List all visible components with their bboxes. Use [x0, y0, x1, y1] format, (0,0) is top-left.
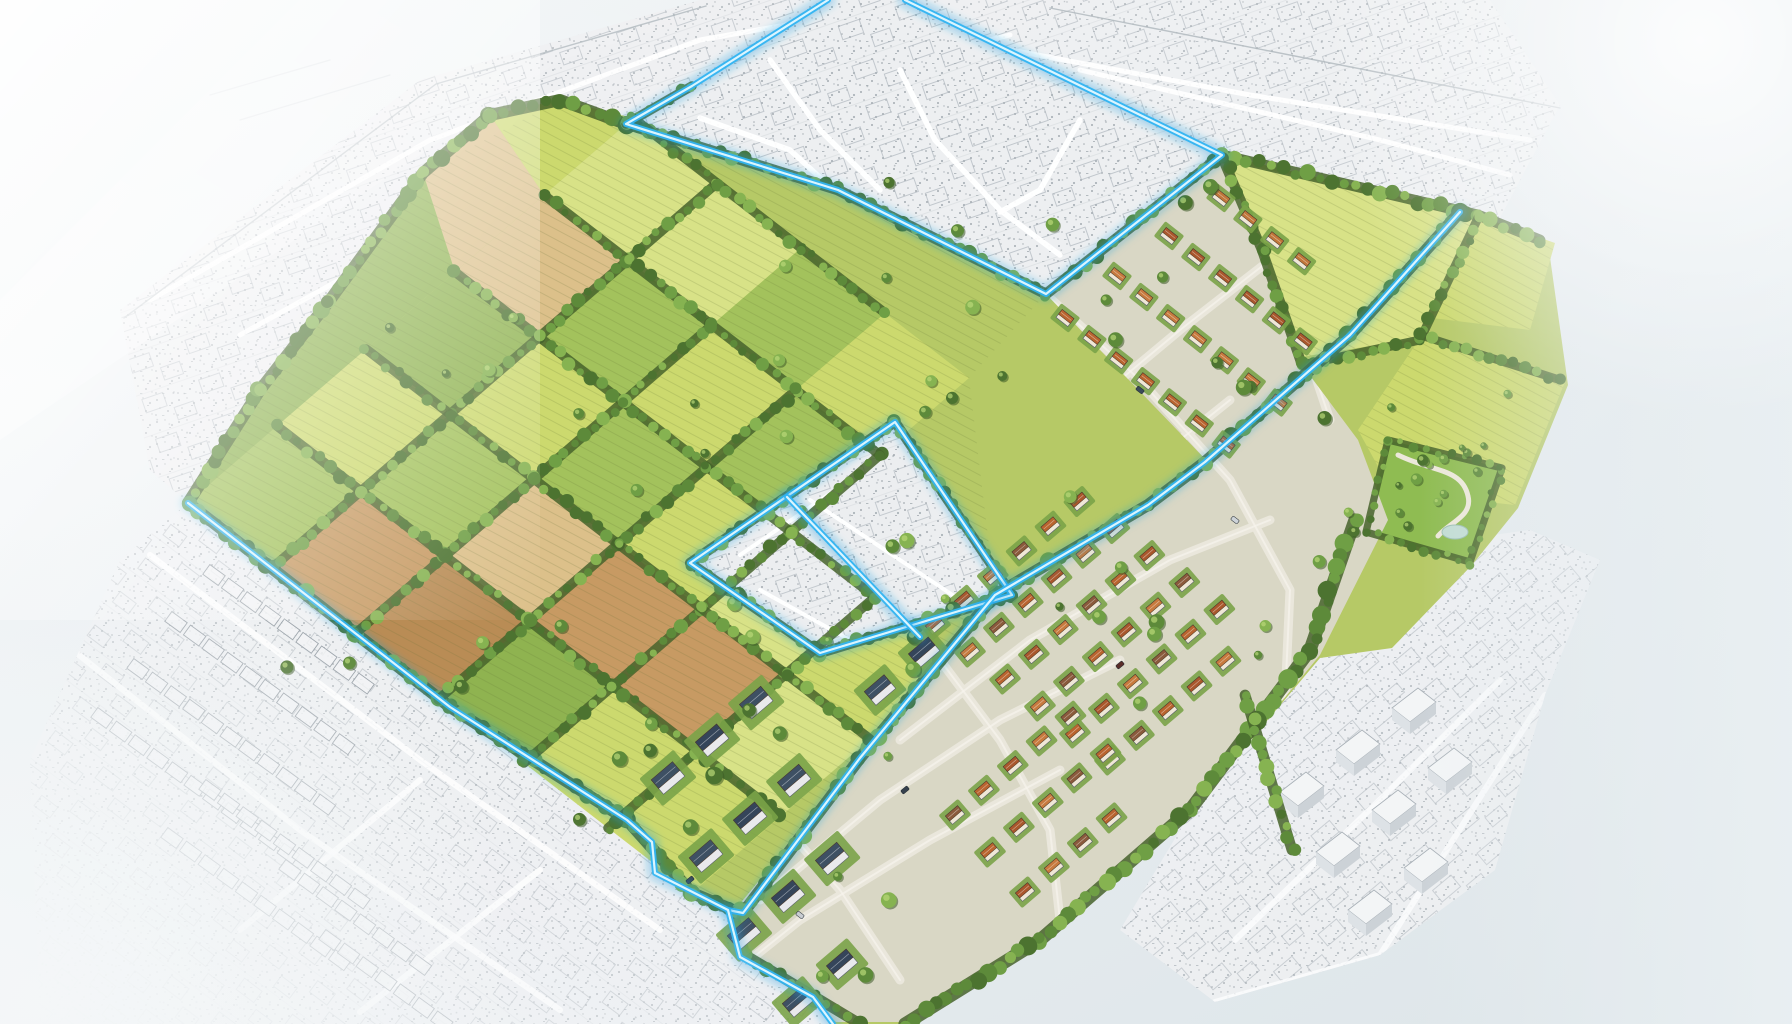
hedgerow-tree — [539, 485, 548, 494]
tree — [573, 408, 584, 419]
hedgerow-tree — [1283, 822, 1291, 830]
hedgerow-tree — [792, 678, 799, 685]
hedgerow-tree — [1155, 825, 1170, 840]
tree — [780, 430, 793, 443]
hedgerow-tree — [1089, 886, 1099, 896]
hedgerow-tree — [611, 408, 620, 417]
hedgerow-tree — [645, 269, 658, 282]
tree-highlight — [902, 535, 908, 541]
tree — [1236, 380, 1252, 396]
tree-highlight — [1135, 699, 1140, 704]
tree-highlight — [1261, 622, 1266, 627]
hedgerow-tree — [605, 389, 619, 403]
tree-highlight — [1255, 652, 1258, 655]
hedgerow-tree — [1370, 502, 1378, 510]
tree — [1260, 620, 1272, 632]
hedgerow-tree — [703, 186, 713, 196]
hedgerow-tree — [825, 267, 837, 279]
hedgerow-tree — [828, 561, 835, 568]
hedgerow-tree — [738, 347, 746, 355]
hedgerow-tree — [775, 230, 783, 238]
tree-highlight — [860, 969, 866, 975]
hedgerow-tree — [711, 455, 720, 464]
hedgerow-tree — [1099, 874, 1116, 891]
hedgerow-tree — [731, 434, 741, 444]
hedgerow-tree — [826, 409, 833, 416]
hedgerow-tree — [795, 537, 804, 546]
hedgerow-tree — [852, 723, 863, 734]
hedgerow-tree — [1367, 515, 1375, 523]
tree-highlight — [1351, 528, 1355, 532]
hedgerow-tree — [1378, 342, 1390, 354]
hedgerow-tree — [668, 148, 679, 159]
tree — [1055, 602, 1063, 610]
hedgerow-tree — [570, 507, 582, 519]
hedgerow-tree — [763, 539, 777, 553]
hedgerow-tree — [840, 619, 849, 628]
hedgerow-tree — [832, 1004, 840, 1012]
tree-highlight — [825, 638, 828, 641]
tree — [1101, 294, 1112, 305]
tree-highlight — [1238, 382, 1244, 388]
hedgerow-tree — [561, 209, 568, 216]
hedgerow-tree — [633, 524, 644, 535]
hedgerow-tree — [773, 369, 782, 378]
hedgerow-tree — [1272, 785, 1282, 795]
tree — [946, 392, 958, 404]
hedgerow-tree — [811, 402, 819, 410]
hedgerow-tree — [1293, 652, 1307, 666]
tree-highlight — [883, 274, 887, 278]
hedgerow-tree — [1267, 280, 1277, 290]
hedgerow-tree — [675, 213, 684, 222]
hedgerow-tree — [1325, 175, 1340, 190]
hedgerow-tree — [596, 377, 608, 389]
hedgerow-tree — [659, 429, 671, 441]
hedgerow-tree — [577, 368, 584, 375]
hedgerow-tree — [815, 499, 827, 511]
tree — [1064, 490, 1077, 503]
tree — [1133, 696, 1146, 709]
hedgerow-tree — [571, 440, 579, 448]
tree — [858, 967, 874, 983]
tree-highlight — [775, 356, 780, 361]
hedgerow-tree — [846, 282, 858, 294]
tree — [925, 375, 937, 387]
hedgerow-tree — [626, 406, 639, 419]
hedgerow-tree — [781, 394, 795, 408]
tree — [1147, 627, 1162, 642]
hedgerow-tree — [1375, 529, 1382, 536]
hedgerow-tree — [591, 424, 599, 432]
tree-highlight — [1315, 557, 1320, 562]
hedgerow-tree — [760, 412, 770, 422]
tree-highlight — [1205, 181, 1211, 187]
hedgerow-tree — [592, 520, 603, 531]
hedgerow-tree — [652, 228, 660, 236]
hedgerow-tree — [546, 323, 556, 333]
hedgerow-tree — [684, 300, 698, 314]
hedgerow-tree — [657, 279, 666, 288]
hedgerow-tree — [815, 696, 824, 705]
tree — [1211, 357, 1223, 369]
hedgerow-tree — [1268, 794, 1282, 808]
hedgerow-tree — [1277, 810, 1286, 819]
hedgerow-tree — [1260, 256, 1270, 266]
tree — [1395, 482, 1402, 489]
tree-highlight — [948, 394, 953, 399]
tree — [1108, 332, 1123, 347]
tree-highlight — [888, 541, 894, 547]
hedgerow-tree — [693, 196, 705, 208]
hedgerow-tree — [854, 469, 865, 480]
hedgerow-tree — [562, 357, 576, 371]
hedgerow-tree — [834, 483, 844, 493]
tree — [690, 399, 699, 408]
hedgerow-tree — [783, 235, 797, 249]
hedgerow-tree — [550, 196, 564, 210]
hedgerow-tree — [1253, 154, 1266, 167]
hedgerow-tree — [721, 332, 728, 339]
hedgerow-tree — [781, 670, 793, 682]
tree — [997, 371, 1007, 381]
hedgerow-tree — [594, 278, 606, 290]
hedgerow-tree — [1397, 539, 1405, 547]
hedgerow-tree — [1280, 831, 1293, 844]
hedgerow-tree — [671, 439, 680, 448]
hedgerow-tree — [1368, 346, 1378, 356]
hedgerow-tree — [833, 419, 841, 427]
tree — [899, 533, 914, 548]
hedgerow-tree — [1289, 844, 1301, 856]
hedgerow-tree — [686, 339, 696, 349]
hedgerow-tree — [837, 276, 847, 286]
hedgerow-tree — [1196, 781, 1212, 797]
hedgerow-tree — [1407, 543, 1416, 552]
tree — [816, 970, 828, 982]
hedgerow-tree — [684, 206, 693, 215]
tree — [881, 273, 891, 283]
hedgerow-tree — [548, 488, 560, 500]
tree-highlight — [1048, 220, 1053, 225]
tree — [883, 752, 892, 761]
tree-highlight — [691, 400, 694, 403]
tree-highlight — [883, 895, 889, 901]
tree-highlight — [1110, 335, 1116, 341]
hedgerow-tree — [581, 105, 591, 115]
hedgerow-tree — [864, 459, 872, 467]
hedgerow-tree — [584, 288, 592, 296]
hedgerow-tree — [558, 448, 568, 458]
tree-highlight — [1102, 296, 1106, 300]
hedgerow-tree — [560, 494, 574, 508]
hedgerow-tree — [612, 249, 622, 259]
hedgerow-tree — [631, 259, 645, 273]
hedgerow-tree — [1404, 342, 1412, 350]
hedgerow-tree — [1223, 161, 1237, 175]
hedgerow-tree — [600, 529, 612, 541]
hedgerow-tree — [554, 315, 566, 327]
tree — [881, 892, 897, 908]
hedgerow-tree — [730, 340, 738, 348]
tree — [1395, 508, 1403, 516]
hedgerow-tree — [1276, 160, 1290, 174]
hedgerow-tree — [661, 496, 674, 509]
hedgerow-tree — [603, 241, 612, 250]
tree — [773, 726, 787, 740]
tree — [631, 484, 643, 496]
tree — [773, 354, 785, 366]
hedgerow-tree — [539, 189, 551, 201]
hedgerow-tree — [743, 199, 756, 212]
tree-highlight — [1057, 604, 1060, 607]
tree-highlight — [781, 262, 786, 267]
tree — [1387, 403, 1395, 411]
hedgerow-tree — [638, 412, 647, 421]
hedgerow-tree — [1380, 464, 1386, 470]
tree-highlight — [575, 410, 579, 414]
tree — [965, 300, 980, 315]
hedgerow-tree — [744, 494, 753, 503]
tree — [1115, 561, 1127, 573]
hedgerow-tree — [918, 1001, 935, 1018]
hedgerow-tree — [786, 527, 798, 539]
hedgerow-tree — [1372, 489, 1379, 496]
tree — [1046, 218, 1060, 232]
hedgerow-tree — [1005, 952, 1016, 963]
hedgerow-tree — [696, 311, 707, 322]
hedgerow-tree — [749, 354, 757, 362]
tree — [1313, 555, 1326, 568]
hedgerow-tree — [815, 549, 826, 560]
hedgerow-tree — [705, 318, 717, 330]
hedgerow-tree — [806, 543, 816, 553]
hedgerow-tree — [584, 371, 598, 385]
tree — [883, 177, 894, 188]
hedgerow-tree — [582, 225, 590, 233]
hedgerow-tree — [551, 94, 566, 109]
hedgerow-tree — [1374, 476, 1382, 484]
tree — [1092, 610, 1106, 624]
hedgerow-tree — [797, 246, 806, 255]
tree-highlight — [1388, 404, 1391, 407]
hedgerow-tree — [756, 358, 769, 371]
hedgerow-tree — [1249, 713, 1262, 726]
hedgerow-tree — [704, 169, 711, 176]
hedgerow-tree — [661, 217, 675, 231]
tree — [1403, 521, 1412, 530]
tree — [1344, 508, 1353, 517]
hedgerow-tree — [775, 517, 786, 528]
hedgerow-tree — [761, 651, 772, 662]
hedgerow-tree — [1300, 164, 1316, 180]
hedgerow-tree — [819, 263, 827, 271]
hedgerow-tree — [605, 272, 614, 281]
hedgerow-tree — [1324, 597, 1334, 607]
hedgerow-tree — [636, 380, 644, 388]
scene-svg — [0, 0, 1792, 1024]
hedgerow-tree — [826, 492, 839, 505]
hedgerow-tree — [951, 983, 964, 996]
hedgerow-tree — [762, 218, 774, 230]
hedgerow-tree — [690, 159, 701, 170]
hedgerow-tree — [772, 664, 780, 672]
hedgerow-tree — [875, 451, 885, 461]
hedgerow-tree — [720, 186, 732, 198]
tree-highlight — [1213, 358, 1218, 363]
tree — [886, 539, 900, 553]
hedgerow-tree — [1316, 174, 1324, 182]
tree-highlight — [1149, 629, 1155, 635]
tree-highlight — [1405, 523, 1409, 527]
tree — [1203, 179, 1218, 194]
hedgerow-tree — [1291, 170, 1301, 180]
tree-highlight — [953, 226, 958, 231]
hedgerow-tree — [1045, 926, 1058, 939]
tree-highlight — [1397, 510, 1400, 513]
tree-highlight — [1094, 612, 1100, 618]
hedgerow-tree — [1380, 449, 1388, 457]
hedgerow-tree — [1249, 232, 1261, 244]
hedgerow-tree — [642, 236, 651, 245]
hedgerow-tree — [1258, 750, 1268, 760]
hedgerow-tree — [772, 679, 782, 689]
hedgerow-tree — [851, 609, 863, 621]
hedgerow-tree — [592, 231, 602, 241]
hedgerow-tree — [1357, 351, 1366, 360]
tree-highlight — [921, 408, 926, 413]
hedgerow-tree — [723, 444, 734, 455]
hedgerow-tree — [541, 96, 551, 106]
hedgerow-tree — [799, 653, 811, 665]
tree — [951, 224, 964, 237]
hedgerow-tree — [596, 412, 610, 426]
hedgerow-tree — [671, 354, 678, 361]
hedgerow-tree — [1309, 619, 1326, 636]
hedgerow-tree — [1251, 735, 1267, 751]
hedgerow-tree — [682, 479, 695, 492]
hedgerow-tree — [858, 293, 868, 303]
hedgerow-tree — [740, 426, 751, 437]
hedgerow-tree — [561, 304, 573, 316]
tree-highlight — [1180, 197, 1186, 203]
tree-highlight — [818, 972, 823, 977]
hedgerow-tree — [1312, 633, 1323, 644]
tree-highlight — [702, 450, 706, 454]
hedgerow-tree — [632, 244, 645, 257]
hedgerow-tree — [790, 382, 802, 394]
hedgerow-tree — [1263, 269, 1271, 277]
hedgerow-tree — [618, 397, 628, 407]
hedgerow-tree — [769, 402, 781, 414]
hedgerow-tree — [879, 307, 890, 318]
hedgerow-tree — [1397, 438, 1403, 444]
hedgerow-tree — [829, 626, 840, 637]
hedgerow-tree — [1250, 726, 1260, 736]
hedgerow-tree — [1261, 246, 1270, 255]
hedgerow-tree — [843, 1012, 853, 1022]
tree-highlight — [927, 377, 932, 382]
hedgerow-tree — [1130, 853, 1141, 864]
hedgerow-tree — [701, 462, 709, 470]
tree-highlight — [908, 664, 914, 670]
hedgerow-tree — [648, 422, 658, 432]
tree-highlight — [999, 373, 1003, 377]
hedgerow-tree — [555, 346, 567, 358]
hedgerow-tree — [1384, 436, 1392, 444]
tree — [1178, 195, 1193, 210]
hedgerow-tree — [648, 371, 657, 380]
hedgerow-tree — [565, 96, 580, 111]
hedgerow-tree — [870, 302, 880, 312]
tree-highlight — [1320, 413, 1326, 419]
hedgerow-tree — [1239, 698, 1254, 713]
hedgerow-tree — [1385, 535, 1395, 545]
hedgerow-tree — [1364, 529, 1370, 535]
tree-highlight — [633, 486, 638, 491]
hedgerow-tree — [755, 214, 763, 222]
hedgerow-tree — [844, 476, 853, 485]
tree — [700, 449, 709, 458]
tree-highlight — [1066, 492, 1071, 497]
tree-highlight — [1117, 563, 1122, 568]
tree — [919, 406, 931, 418]
hedgerow-tree — [581, 511, 593, 523]
tree-highlight — [1345, 509, 1349, 513]
hedgerow-tree — [1267, 161, 1276, 170]
tree-highlight — [1159, 273, 1163, 277]
hedgerow-tree — [577, 428, 591, 442]
tree-highlight — [1151, 616, 1157, 622]
tree-highlight — [942, 596, 946, 600]
hedgerow-tree — [1408, 443, 1418, 453]
tree-highlight — [885, 753, 888, 756]
hedgerow-tree — [1389, 338, 1402, 351]
tree-highlight — [775, 728, 781, 734]
tree-highlight — [885, 179, 889, 183]
tree-highlight — [782, 432, 787, 437]
tree — [1157, 271, 1168, 282]
hedgerow-tree — [833, 707, 844, 718]
hedgerow-tree — [1225, 175, 1237, 187]
tree-highlight — [834, 873, 838, 877]
hedgerow-tree — [650, 505, 663, 518]
hedgerow-tree — [611, 263, 622, 274]
tree — [1318, 411, 1332, 425]
hedgerow-tree — [692, 452, 701, 461]
tree — [1254, 651, 1262, 659]
hedgerow-tree — [1343, 351, 1356, 364]
hedgerow-tree — [710, 467, 723, 480]
tree — [1350, 527, 1360, 537]
hedgerow-tree — [1260, 771, 1275, 786]
hedgerow-tree — [571, 293, 585, 307]
hedgerow-tree — [631, 387, 639, 395]
hedgerow-tree — [664, 286, 677, 299]
aerial-parcel-illustration — [0, 0, 1792, 1024]
hedgerow-tree — [573, 216, 582, 225]
hedgerow-tree — [1240, 156, 1252, 168]
hedgerow-tree — [731, 483, 744, 496]
hedgerow-tree — [808, 250, 815, 257]
tree — [779, 260, 791, 272]
hedgerow-tree — [682, 153, 693, 164]
tree-highlight — [967, 302, 973, 308]
tree — [833, 872, 842, 881]
tree — [941, 594, 950, 603]
hedgerow-tree — [800, 681, 814, 695]
tree — [905, 662, 920, 677]
